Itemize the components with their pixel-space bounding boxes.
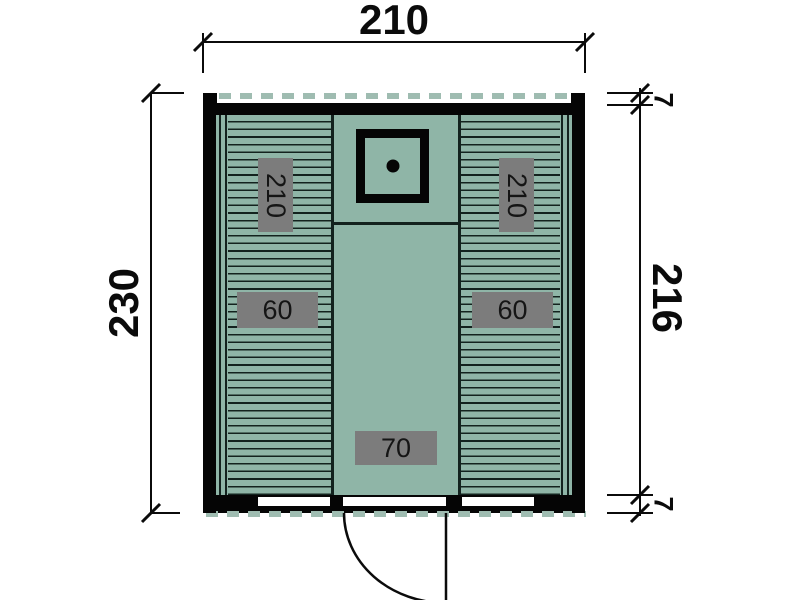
bench-left-length-badge: 210 <box>258 158 293 232</box>
bench-right-width-badge: 60 <box>472 292 553 328</box>
bench-right-length-badge: 210 <box>499 158 534 232</box>
dimension-label-left-height: 230 <box>103 268 145 338</box>
stove-platform-edge <box>334 222 458 225</box>
walkway-edge-right <box>458 115 461 495</box>
bench-left-length-label: 210 <box>262 172 289 217</box>
sauna-interior: 210 210 60 60 70 <box>216 115 572 495</box>
walkway-width-label: 70 <box>381 435 411 462</box>
window-bottom-left <box>258 497 330 506</box>
walkway-edge-left <box>331 115 334 495</box>
wall-board-line <box>225 115 227 495</box>
wall-left <box>203 103 216 513</box>
wall-board-line <box>567 115 569 495</box>
door-swing <box>344 513 446 600</box>
dimension-label-overhang-bottom: 7 <box>650 496 677 511</box>
bench-right-width-label: 60 <box>497 297 527 324</box>
bench-left-width-badge: 60 <box>237 292 318 328</box>
corner-post-top-right <box>571 93 585 115</box>
dimension-left <box>142 84 184 522</box>
wall-board-line <box>219 115 221 495</box>
roof-edge-dashed-top <box>219 93 567 99</box>
dimension-label-overhang-top: 7 <box>650 92 677 107</box>
corner-post-top-left <box>203 93 217 115</box>
stove-flue-dot <box>386 160 399 173</box>
building-outline: 210 210 60 60 70 <box>203 93 585 513</box>
wall-right <box>572 103 585 513</box>
bench-left-width-label: 60 <box>262 297 292 324</box>
door-opening <box>343 497 446 506</box>
dimension-label-right-height: 216 <box>646 263 688 333</box>
window-bottom-right <box>462 497 534 506</box>
floor-plan-drawing: 210 230 216 7 7 <box>0 0 800 600</box>
walkway-width-badge: 70 <box>355 431 437 465</box>
roof-edge-dashed-bottom <box>206 511 586 517</box>
dimension-label-top-width: 210 <box>359 0 429 41</box>
bench-right-length-label: 210 <box>503 172 530 217</box>
wall-board-line <box>561 115 563 495</box>
wall-top <box>203 103 585 115</box>
stove <box>356 129 429 203</box>
